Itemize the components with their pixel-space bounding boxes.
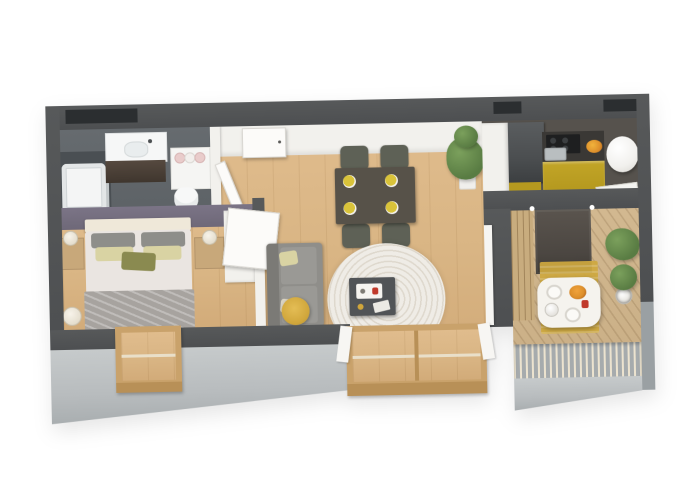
bedroom-window-sill: [116, 382, 182, 393]
nightstand-right: [194, 237, 225, 270]
dining-chair-top-right: [380, 145, 408, 170]
kitchen-sink: [544, 147, 566, 160]
place-setting-1: [343, 175, 356, 188]
red-glass: [581, 300, 588, 308]
vanity-countertop: [105, 132, 168, 163]
bathroom-window: [65, 108, 137, 124]
coffee-table: [349, 277, 396, 316]
wall-right-lower: [641, 302, 656, 390]
tray-item: [360, 289, 365, 294]
fridge: [508, 122, 545, 183]
fruit-dish: [569, 285, 586, 299]
balcony-plant-small: [610, 264, 638, 291]
place-setting-4: [385, 201, 398, 214]
vanity-sink-basin: [124, 141, 148, 157]
dining-table: [335, 167, 416, 225]
towel-roll-3: [194, 152, 205, 163]
place-setting-2: [385, 174, 398, 187]
sofa-backrest: [266, 244, 280, 328]
entrance-door-handle: [278, 140, 281, 143]
balcony-slat-wall-left: [511, 210, 535, 320]
door-handle-dot-1: [529, 206, 534, 211]
balcony-plant-large: [605, 228, 640, 261]
balcony-railing: [513, 342, 642, 381]
table-book: [373, 300, 391, 313]
pillow-olive-center: [121, 252, 156, 272]
water-heater: [606, 136, 639, 173]
bathroom: [60, 127, 212, 214]
kitchen-window-2: [603, 99, 637, 112]
serving-tray: [356, 283, 382, 299]
wall-bottom-front: [50, 344, 351, 424]
sofa-pillow-yellow: [279, 250, 299, 267]
double-bed: [85, 229, 193, 331]
dining-chair-top-left: [340, 146, 368, 171]
vanity-cabinet-front: [105, 160, 165, 183]
dining-chair-bottom-left: [342, 224, 370, 249]
balcony-plant-small-pot: [616, 288, 631, 303]
apartment-floor-plan: [45, 92, 656, 440]
page-background: { "scene": { "kind": "3d-floor-plan-rend…: [0, 0, 700, 500]
bathtub: [62, 163, 107, 212]
door-handle-dot-2: [589, 205, 594, 210]
entrance-door: [242, 127, 287, 158]
living-glass-door-frame: [346, 323, 487, 396]
table-candle: [358, 304, 364, 310]
kitchen-counter: [542, 131, 605, 162]
table-lamp-right: [202, 230, 217, 245]
kitchen-cabinet-yellow: [543, 161, 606, 190]
fruit-bowl: [586, 140, 602, 153]
tray-red-item: [372, 287, 378, 294]
table-lamp-left: [63, 231, 78, 246]
kitchen-window-1: [493, 101, 521, 114]
burner-2: [562, 137, 568, 143]
bedroom-window-frame: [115, 326, 182, 393]
table-plate-1: [546, 285, 562, 300]
table-plate-2: [565, 307, 581, 322]
balcony-base: [514, 376, 643, 411]
vanity-faucet: [148, 139, 152, 143]
towel-shelf: [170, 147, 211, 190]
coffee-pot: [546, 304, 558, 316]
balcony: [511, 208, 643, 385]
place-setting-3: [343, 202, 356, 215]
balcony-table: [537, 277, 601, 328]
living-glass-door-sill: [347, 381, 487, 396]
burner-1: [550, 138, 556, 144]
